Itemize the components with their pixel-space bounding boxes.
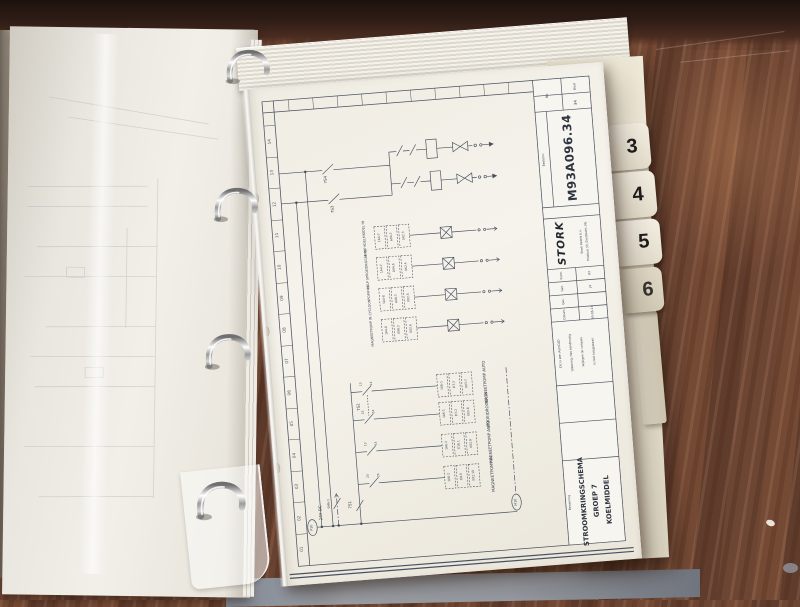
io-tag: 0X2.3 [401, 231, 406, 240]
form-row-label: Datum [562, 309, 567, 319]
io-tag: A04.6 [391, 263, 396, 272]
plc-output-circuits [374, 217, 505, 342]
grid-number: 10 [276, 264, 281, 270]
grid-number: 05 [289, 421, 294, 427]
io-tag: 0X2.6 [408, 324, 413, 333]
grid-numbers: 14 13 12 11 10 09 08 07 06 05 04 03 02 0… [267, 139, 305, 553]
form-row-label: Get. [560, 285, 564, 292]
io-tag: 1A4-7 [377, 233, 382, 242]
binder-ring-4 [194, 480, 248, 522]
stork-logo-reg-mark: ® [554, 221, 558, 224]
io-tag: 1A4-8 [381, 295, 386, 304]
io-tag: A04.7 [389, 232, 394, 241]
io-tag: 1A4-7 [379, 264, 384, 273]
contact-number: 23 [361, 410, 365, 414]
switch-7s3-label: 7S3 [329, 205, 335, 213]
contact-number: 14 [369, 381, 373, 385]
form-row-label: Gec. [561, 298, 566, 305]
io-tag: 1A4-8 [384, 326, 389, 335]
binder-tab-6-label: 6 [641, 278, 654, 302]
paint-chip [765, 519, 776, 528]
supply-p10-tag: P10 [309, 524, 313, 530]
grid-number: 13 [269, 169, 274, 175]
io-tag: D7.3 [452, 381, 457, 388]
supply-voltage: 24V DC [317, 505, 323, 520]
binder-tab-3-label: 3 [625, 135, 638, 159]
io-tag: 0X3.7 [464, 379, 469, 388]
sheet-number: 34 [573, 99, 578, 105]
io-tag: D7.2 [454, 409, 459, 416]
grid-number: 06 [286, 390, 291, 396]
io-tag: E8.0 [459, 473, 464, 480]
grid-number: 12 [271, 201, 276, 207]
io-tag: E18.1 [456, 440, 461, 449]
switch-6m6-label: 6M6-1 [326, 499, 331, 509]
circuit-name: CYCLOONPOMP IN [366, 285, 372, 315]
contact-number: 14 [374, 441, 378, 445]
binder-ring-2 [212, 186, 260, 224]
sheet-label: Blad [572, 83, 577, 90]
binder-tab-5: 5 [613, 218, 663, 267]
grid-number: 08 [281, 327, 286, 333]
io-tag: 1A6-2 [446, 473, 451, 482]
io-tag: 1A6-1 [439, 381, 444, 390]
form-row-value: A3 [587, 271, 591, 275]
circuit-name: MAGNEETPOMP IN [488, 456, 496, 492]
binder-tab-5-label: 5 [637, 230, 650, 254]
io-tag: A08.2 [396, 325, 401, 334]
schematic-drawing: 14 13 12 11 10 09 08 07 06 05 04 03 02 0… [244, 62, 642, 587]
binder-tab-6: 6 [619, 266, 665, 313]
contact-number: 24 [376, 473, 380, 477]
relay-input-labels: 13 14 23 24 13 14 23 24 7S2 7S1 6M6-1 1A… [297, 359, 518, 531]
io-tag: A08.3 [394, 294, 399, 303]
switch-7s1-label: 7S1 [347, 500, 353, 508]
plc-output-labels: 4.KLP KOELMIDDEL IN 1A4-7 A04.7 0X2.3 4.… [361, 217, 414, 346]
io-tag: 0X3.8 [466, 407, 471, 416]
switch-7s2-label: 7S2 [355, 403, 361, 411]
grid-number: 07 [284, 358, 289, 364]
contact-number: 24 [371, 409, 375, 413]
io-tag: 0X2.9 [468, 439, 473, 448]
circuit-name: MAGNEETPOMP IN [368, 316, 374, 347]
form-row-label: Form. [559, 271, 564, 280]
io-tag: 0X2.10 [471, 470, 476, 481]
grid-number: 14 [267, 139, 272, 145]
no-label: No. [545, 93, 549, 99]
io-tag: 0X2.5 [406, 293, 411, 302]
circuit-name: 4.KLP SPROEIDROGER IN [363, 249, 370, 291]
grid-number: 03 [294, 483, 299, 489]
contact-number: 13 [359, 382, 363, 386]
grid-number: 01 [299, 546, 304, 552]
binder-ring-3 [203, 332, 253, 372]
grid-number: 11 [274, 232, 279, 238]
io-tag: 1A6-2 [444, 441, 449, 450]
io-tag: 1A6-1 [441, 409, 446, 418]
binder-tab-4-label: 4 [631, 183, 644, 207]
binder-ring-1 [224, 48, 272, 86]
grid-number: 09 [279, 295, 284, 301]
io-tag: 0X2.4 [403, 262, 408, 271]
desk-spot [783, 563, 798, 573]
contact-number: 23 [366, 474, 370, 478]
grid-number: 04 [291, 452, 296, 458]
supply-m10-tag: M10 [513, 499, 518, 506]
grid-number: 02 [296, 515, 301, 521]
switch-7s4-label: 7S4 [322, 175, 328, 183]
contact-number: 13 [363, 442, 367, 446]
schematic-page: 14 13 12 11 10 09 08 07 06 05 04 03 02 0… [244, 62, 642, 587]
